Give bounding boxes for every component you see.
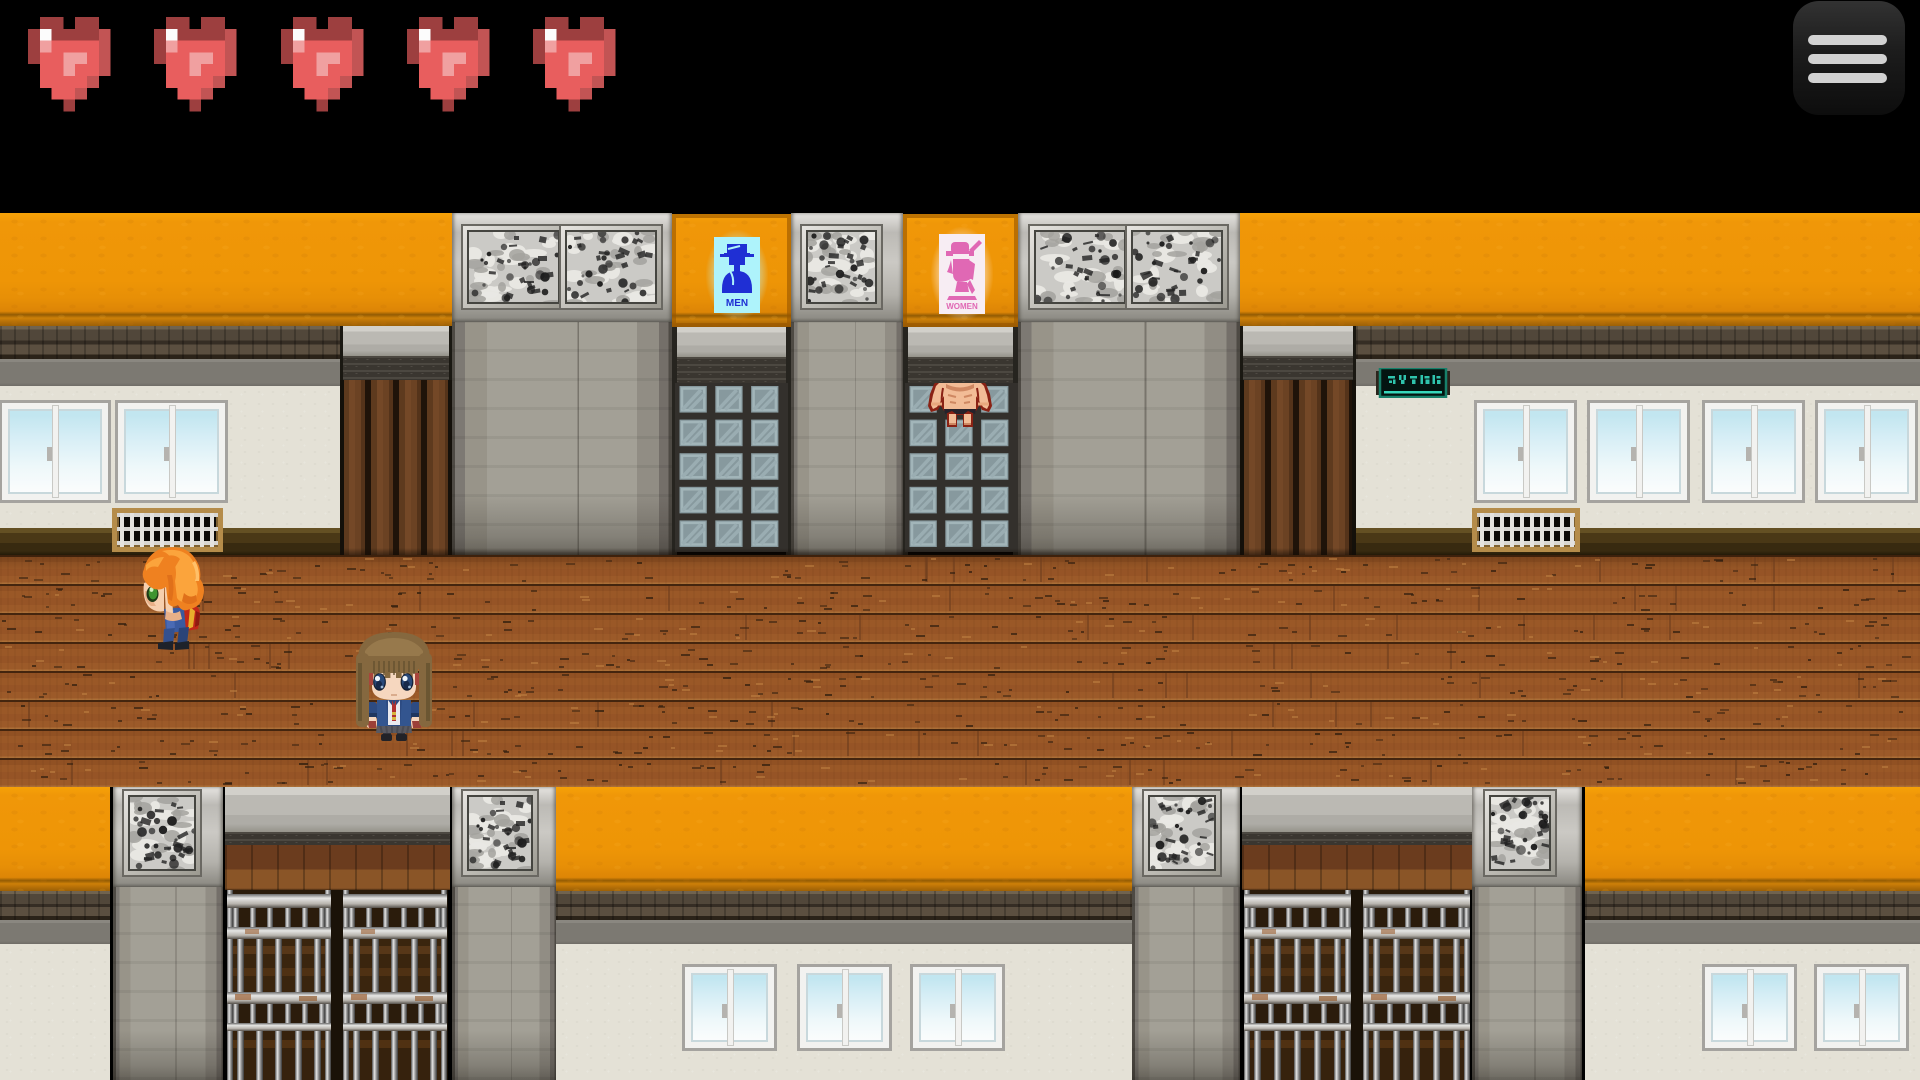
svg-text:WOMEN: WOMEN	[946, 302, 978, 311]
svg-text:MEN: MEN	[726, 298, 748, 309]
